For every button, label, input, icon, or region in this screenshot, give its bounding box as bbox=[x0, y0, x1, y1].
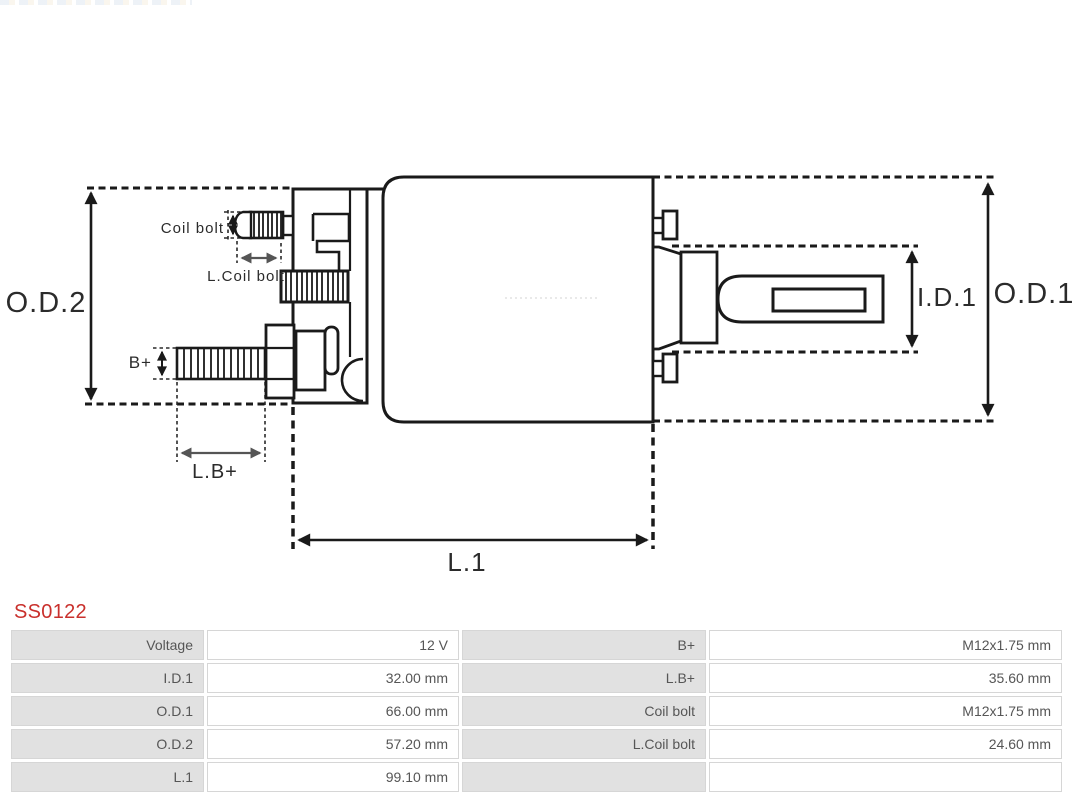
l1-extent-lines bbox=[293, 407, 653, 549]
spec-cell-value: M12x1.75 mm bbox=[709, 696, 1062, 726]
dim-label-lb-plus: L.B+ bbox=[192, 461, 238, 483]
dim-label-l-coil-bolt: L.Coil bolt bbox=[207, 268, 285, 285]
spec-cell-label: B+ bbox=[462, 630, 706, 660]
dim-label-od1: O.D.1 bbox=[994, 278, 1075, 310]
solenoid-diagram: O.D.2 O.D.1 I.D.1 L.1 L.B+ B+ Coil bolt … bbox=[0, 0, 1080, 596]
product-drawing-page: O.D.2 O.D.1 I.D.1 L.1 L.B+ B+ Coil bolt … bbox=[0, 0, 1080, 799]
coil-thread-bushing bbox=[281, 271, 348, 302]
spec-cell-label: O.D.2 bbox=[11, 729, 204, 759]
plunger-rod-slot bbox=[773, 289, 865, 311]
spec-cell-value: 12 V bbox=[207, 630, 459, 660]
spec-cell-label: Voltage bbox=[11, 630, 204, 660]
b-plus-bolt bbox=[177, 325, 338, 398]
spec-cell-label: L.1 bbox=[11, 762, 204, 792]
coil-bolt-head bbox=[235, 212, 251, 238]
spec-cell-value: 24.60 mm bbox=[709, 729, 1062, 759]
spec-cell-value: M12x1.75 mm bbox=[709, 630, 1062, 660]
spec-cell-label bbox=[462, 762, 706, 792]
dim-label-l1: L.1 bbox=[447, 547, 486, 577]
solenoid-body bbox=[383, 177, 653, 422]
plunger-cap bbox=[653, 247, 681, 349]
dim-label-od2: O.D.2 bbox=[6, 287, 87, 319]
spec-cell-value: 99.10 mm bbox=[207, 762, 459, 792]
spec-cell-label: I.D.1 bbox=[11, 663, 204, 693]
b-plus-nut bbox=[266, 325, 294, 398]
spec-cell-value: 35.60 mm bbox=[709, 663, 1062, 693]
spec-cell-value bbox=[709, 762, 1062, 792]
plunger-collar bbox=[681, 252, 717, 343]
small-extent-lines bbox=[153, 210, 281, 462]
part-number: SS0122 bbox=[14, 600, 87, 624]
b-plus-washer-bar bbox=[325, 327, 338, 374]
dim-label-coil-bolt: Coil bolt bbox=[161, 220, 224, 237]
spec-cell-label: O.D.1 bbox=[11, 696, 204, 726]
spec-cell-value: 66.00 mm bbox=[207, 696, 459, 726]
plunger-assembly bbox=[653, 247, 883, 349]
dim-label-id1: I.D.1 bbox=[917, 282, 977, 312]
spec-cell-label: L.B+ bbox=[462, 663, 706, 693]
spec-cell-label: L.Coil bolt bbox=[462, 729, 706, 759]
b-plus-washer-plate bbox=[296, 331, 325, 390]
coil-bolt bbox=[235, 212, 293, 238]
spec-cell-label: Coil bolt bbox=[462, 696, 706, 726]
spec-cell-value: 32.00 mm bbox=[207, 663, 459, 693]
spec-cell-value: 57.20 mm bbox=[207, 729, 459, 759]
dim-label-b-plus: B+ bbox=[129, 353, 152, 372]
spec-table: Voltage 12 V B+ M12x1.75 mm I.D.1 32.00 … bbox=[11, 630, 1062, 792]
